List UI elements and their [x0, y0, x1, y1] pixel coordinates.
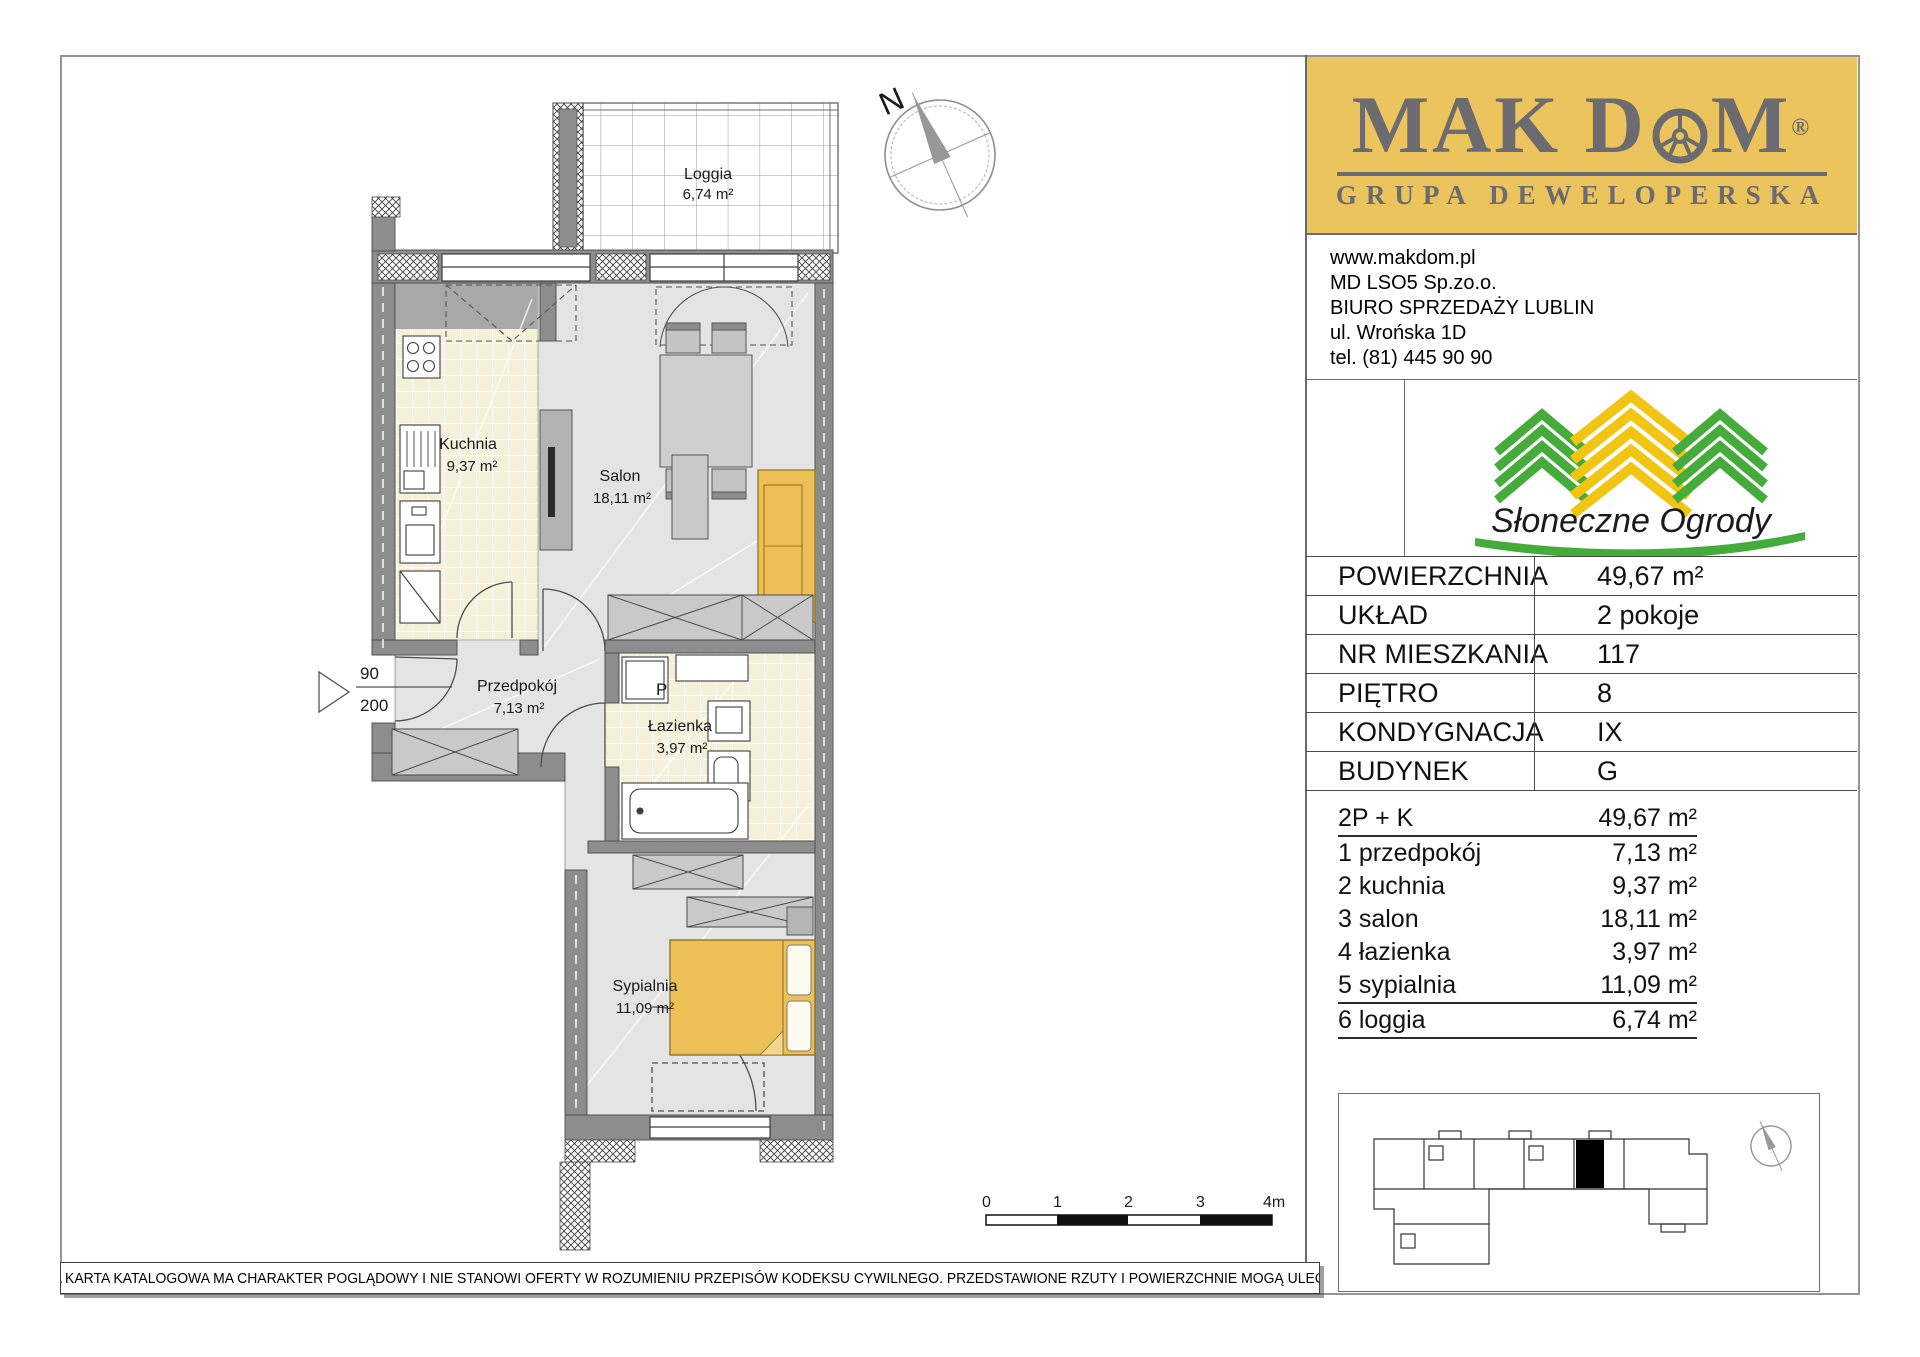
- spec-label: UKŁAD: [1306, 600, 1534, 631]
- room-label-sypialnia: Sypialnia: [613, 978, 678, 995]
- building-outline: [1374, 1131, 1707, 1264]
- hall-wardrobe: [392, 729, 518, 775]
- spec-row: PIĘTRO 8: [1306, 674, 1857, 713]
- rooms-summary-label: 2P + K: [1338, 804, 1413, 833]
- spec-label: PIĘTRO: [1306, 678, 1534, 709]
- registered-mark: ®: [1791, 86, 1812, 170]
- spec-row: BUDYNEK G: [1306, 752, 1857, 791]
- room-area-przedpokoj: 7,13 m²: [494, 700, 545, 717]
- brand-name-right: M: [1711, 83, 1791, 167]
- scale-bar: 0 1 2 3 4m: [982, 1194, 1285, 1225]
- brand-tagline: GRUPA DEWELOPERSKA: [1336, 180, 1828, 211]
- kitchen-counter-top: [395, 283, 538, 329]
- room-item-label: 2 kuchnia: [1338, 872, 1445, 901]
- room-list-item: 3 salon 18,11 m²: [1338, 903, 1697, 936]
- room-item-label: 3 salon: [1338, 905, 1419, 934]
- dining-table: [660, 355, 752, 467]
- door-width-label: 90: [360, 664, 379, 683]
- room-item-area: 6,74 m²: [1612, 1006, 1697, 1035]
- room-item-area: 18,11 m²: [1600, 905, 1697, 934]
- rooms-summary-area: 49,67 m²: [1598, 804, 1697, 833]
- flower-icon: [1651, 96, 1709, 154]
- contact-phone: tel. (81) 445 90 90: [1330, 346, 1594, 371]
- bath-shelf: [676, 655, 748, 681]
- room-item-area: 11,09 m²: [1600, 971, 1697, 1000]
- scale-tick-1: 1: [1053, 1194, 1062, 1211]
- room-item-area: 9,37 m²: [1612, 872, 1697, 901]
- scale-tick-3: 3: [1196, 1194, 1205, 1211]
- contact-company: MD LSO5 Sp.zo.o.: [1330, 271, 1594, 296]
- scale-tick-4: 4m: [1263, 1194, 1285, 1211]
- spec-value: G: [1534, 752, 1857, 790]
- stove: [403, 336, 440, 378]
- room-item-label: 5 sypialnia: [1338, 971, 1456, 1000]
- room-label-salon: Salon: [600, 468, 641, 485]
- tv-cabinet: [540, 410, 572, 550]
- loggia-area: Loggia 6,74 m²: [553, 103, 838, 253]
- room-label-lazienka: Łazienka: [648, 718, 712, 735]
- brand-name: MAK D M®: [1352, 80, 1812, 170]
- room-list-item: 4 łazienka 3,97 m²: [1338, 936, 1697, 969]
- spec-row: UKŁAD 2 pokoje: [1306, 596, 1857, 635]
- spec-value: 2 pokoje: [1534, 596, 1857, 634]
- spec-value: 117: [1534, 635, 1857, 673]
- spec-label: KONDYGNACJA: [1306, 717, 1534, 748]
- spec-value: 49,67 m²: [1534, 557, 1857, 595]
- estate-logo-chevrons: [1497, 396, 1765, 514]
- room-label-kuchnia: Kuchnia: [439, 436, 497, 453]
- scale-tick-0: 0: [982, 1194, 991, 1211]
- compass-icon: N: [854, 55, 1018, 239]
- room-label-przedpokoj: Przedpokój: [477, 678, 557, 695]
- contact-office: BIURO SPRZEDAŻY LUBLIN: [1330, 296, 1594, 321]
- building-key-plan: [1338, 1093, 1820, 1292]
- contact-website: www.makdom.pl: [1330, 246, 1594, 271]
- coffee-table: [672, 455, 708, 539]
- brand-rule: [1337, 172, 1827, 176]
- room-list-item: 2 kuchnia 9,37 m²: [1338, 870, 1697, 903]
- rooms-list: 2P + K 49,67 m² 1 przedpokój 7,13 m² 2 k…: [1306, 802, 1857, 1039]
- disclaimer-text: NINIEJSZA KARTA KATALOGOWA MA CHARAKTER …: [60, 1270, 1320, 1287]
- keyplan-compass-icon: [1742, 1113, 1801, 1179]
- spec-row: POWIERZCHNIA 49,67 m²: [1306, 557, 1857, 596]
- room-item-area: 3,97 m²: [1612, 938, 1697, 967]
- pillow: [787, 945, 811, 995]
- makdom-logo: MAK D M® GRUPA DEWELOPERSKA: [1307, 57, 1857, 235]
- spec-label: POWIERZCHNIA: [1306, 561, 1534, 592]
- brand-name-left: MAK D: [1352, 83, 1647, 167]
- room-label-loggia: Loggia: [684, 166, 732, 183]
- pillow: [787, 1001, 811, 1051]
- spec-label: BUDYNEK: [1306, 756, 1534, 787]
- closet-wardrobe: [633, 855, 743, 889]
- compass-north-label: N: [874, 80, 910, 122]
- room-area-lazienka: 3,97 m²: [657, 740, 708, 757]
- nightstand: [787, 907, 813, 935]
- contact-block: www.makdom.pl MD LSO5 Sp.zo.o. BIURO SPR…: [1330, 246, 1594, 371]
- contact-street: ul. Wrońska 1D: [1330, 321, 1594, 346]
- room-item-label: 1 przedpokój: [1338, 839, 1481, 868]
- room-area-salon: 18,11 m²: [593, 490, 651, 507]
- room-list-item: 1 przedpokój 7,13 m²: [1338, 837, 1697, 870]
- estate-logo: Słoneczne Ogrody: [1404, 380, 1857, 556]
- room-item-area: 7,13 m²: [1612, 839, 1697, 868]
- estate-name: Słoneczne Ogrody: [1491, 502, 1773, 540]
- catalog-card-page: { "brand": { "name_left": "MAK D", "name…: [0, 0, 1920, 1357]
- spec-value: 8: [1534, 674, 1857, 712]
- entry-arrow-icon: [319, 672, 349, 712]
- room-area-sypialnia: 11,09 m²: [616, 1000, 674, 1017]
- washer-label: P: [656, 680, 667, 699]
- spec-table: POWIERZCHNIA 49,67 m² UKŁAD 2 pokoje NR …: [1306, 556, 1857, 791]
- rooms-summary-row: 2P + K 49,67 m²: [1338, 802, 1697, 837]
- spec-label: NR MIESZKANIA: [1306, 639, 1534, 670]
- disclaimer-bar: NINIEJSZA KARTA KATALOGOWA MA CHARAKTER …: [60, 1262, 1320, 1294]
- room-item-label: 6 loggia: [1338, 1006, 1426, 1035]
- room-list-item: 5 sypialnia 11,09 m²: [1338, 969, 1697, 1004]
- room-area-loggia: 6,74 m²: [683, 186, 734, 203]
- door-height-label: 200: [360, 696, 388, 715]
- scale-tick-2: 2: [1124, 1194, 1133, 1211]
- spec-row: KONDYGNACJA IX: [1306, 713, 1857, 752]
- room-area-kuchnia: 9,37 m²: [447, 458, 498, 475]
- room-item-label: 4 łazienka: [1338, 938, 1451, 967]
- bed: [670, 940, 815, 1055]
- floor-plan: N Loggia 6,74 m²: [60, 55, 1305, 1292]
- highlighted-unit: [1576, 1140, 1604, 1188]
- spec-value: IX: [1534, 713, 1857, 751]
- tv: [548, 447, 555, 517]
- salon-wardrobe: [608, 595, 813, 640]
- bedroom-furniture: [670, 897, 815, 1055]
- room-list-item: 6 loggia 6,74 m²: [1338, 1004, 1697, 1039]
- spec-row: NR MIESZKANIA 117: [1306, 635, 1857, 674]
